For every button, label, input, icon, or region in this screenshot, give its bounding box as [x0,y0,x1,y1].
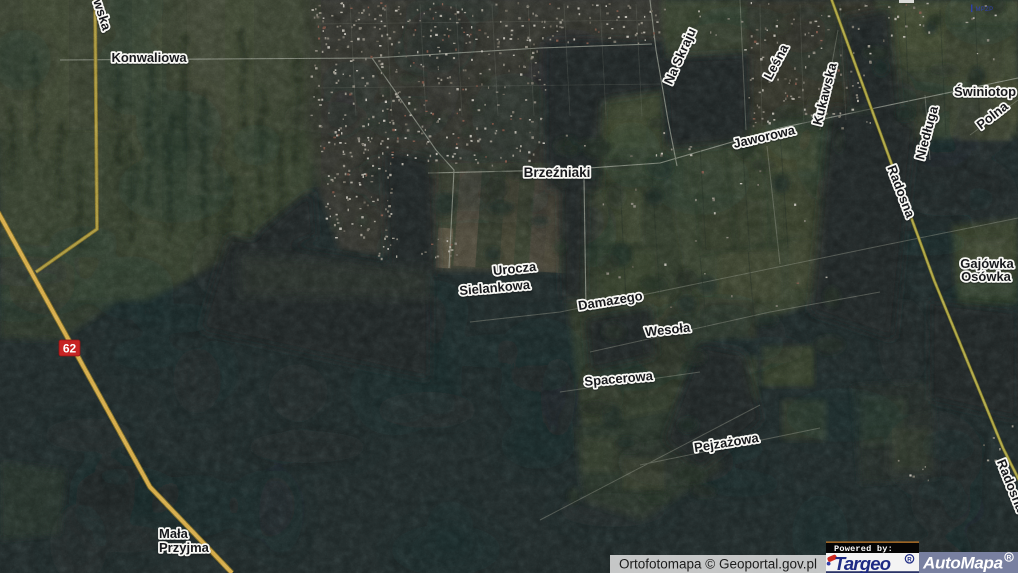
svg-text:Konwaliowa: Konwaliowa [111,50,187,65]
svg-text:Brzeźniaki: Brzeźniaki [524,165,591,180]
svg-text:Świniotop: Świniotop [954,84,1016,99]
svg-text:Ortofotomapa © Geoportal.gov.p: Ortofotomapa © Geoportal.gov.pl [619,557,817,572]
svg-text:R: R [907,556,912,563]
svg-text:Mała: Mała [159,526,189,541]
svg-text:Osówka: Osówka [961,269,1012,284]
svg-text:62: 62 [63,342,77,356]
svg-text:Przyjma: Przyjma [159,540,210,555]
svg-text:Targeo: Targeo [834,553,891,573]
svg-text:MPZP: MPZP [976,7,994,13]
svg-text:AutoMapa: AutoMapa [922,554,1003,573]
svg-text:R: R [1007,555,1012,562]
